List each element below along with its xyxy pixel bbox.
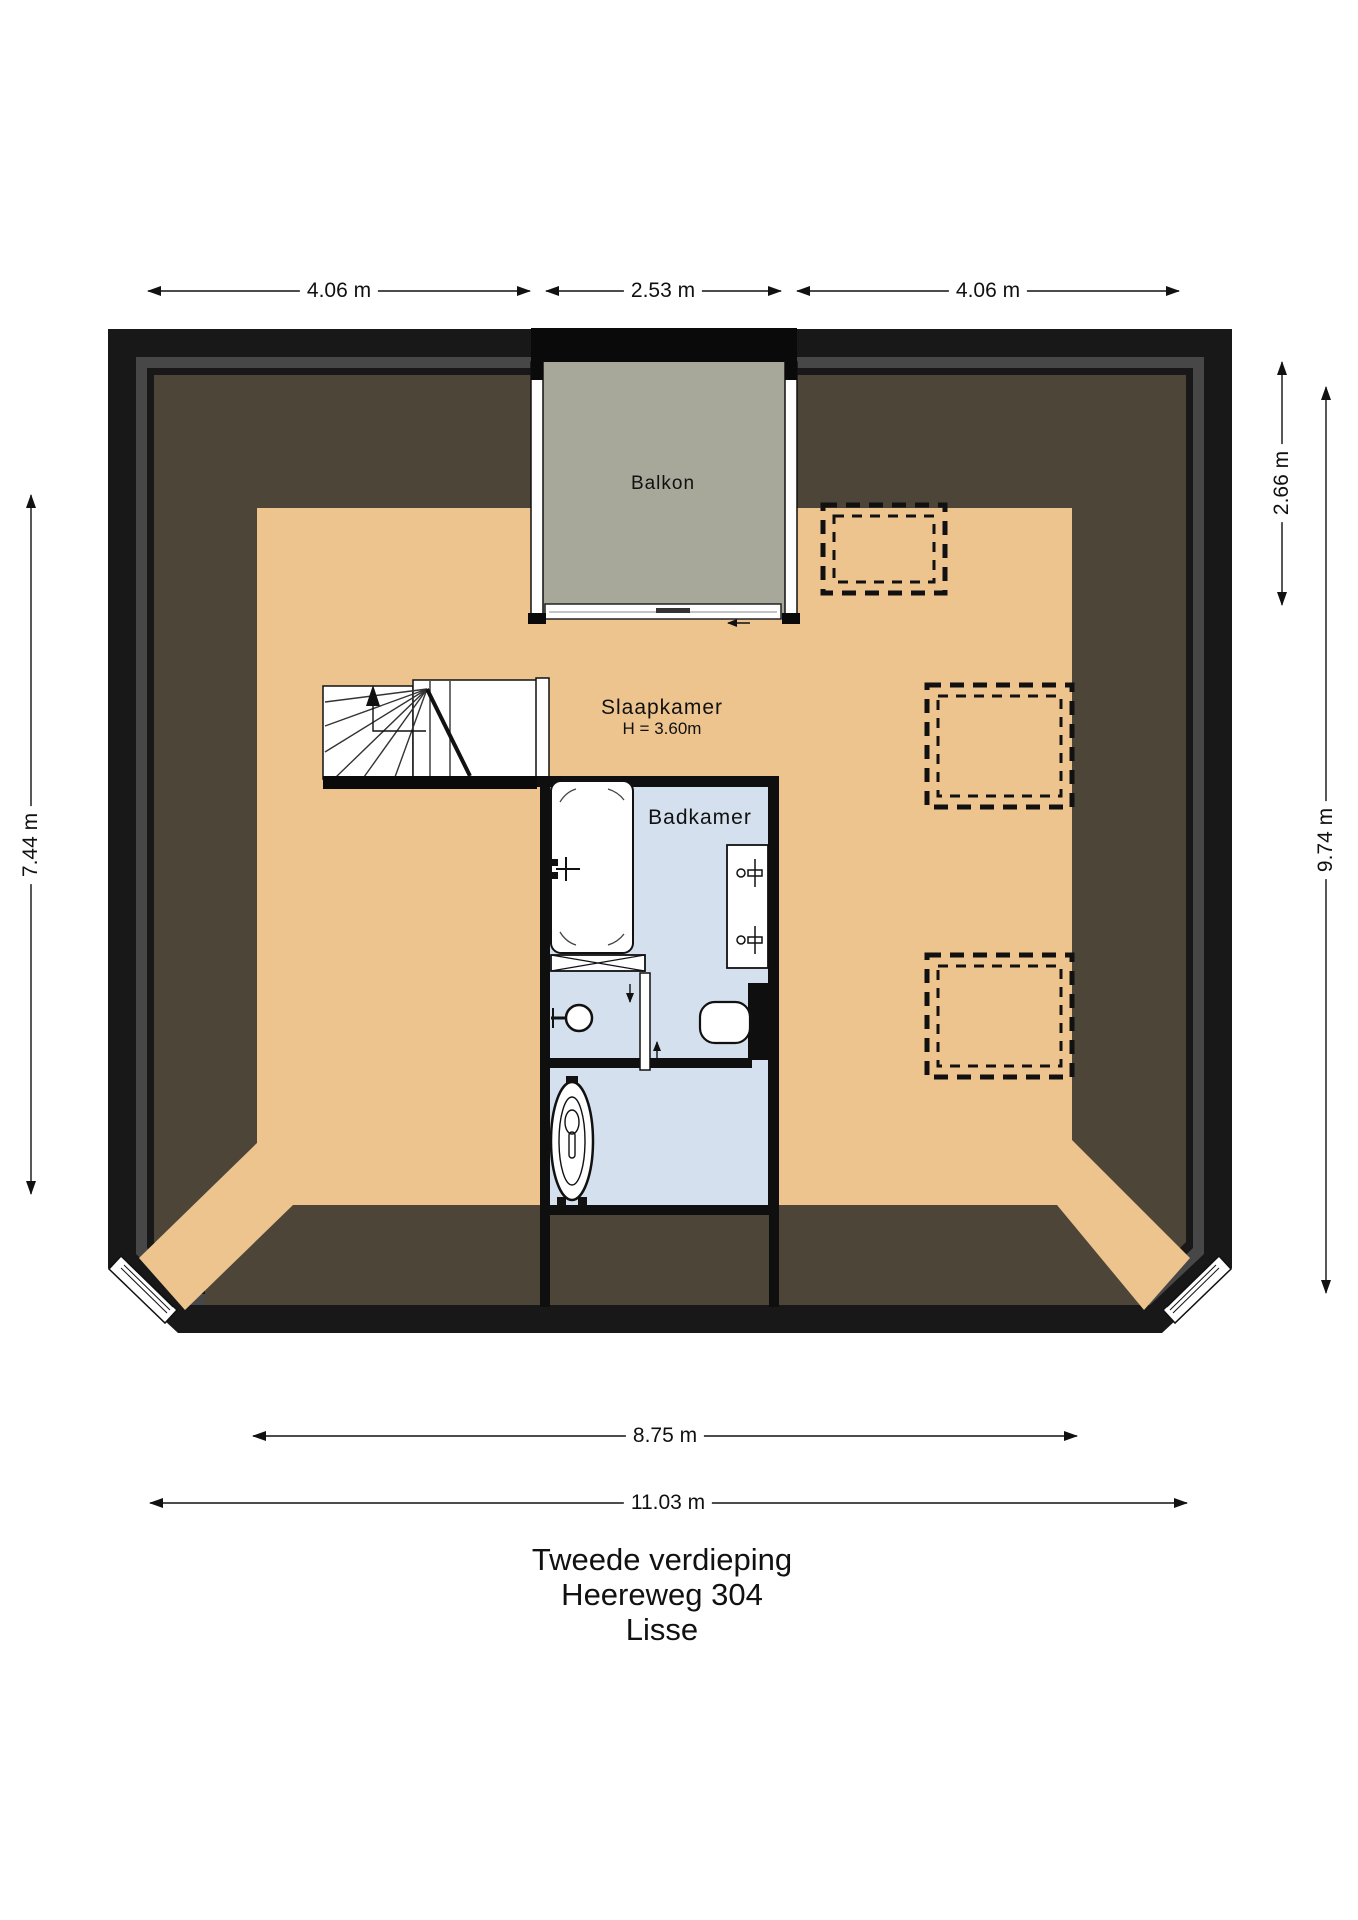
bath-counter (551, 955, 645, 971)
dimension-right-inner-label: 2.66 m (1270, 444, 1294, 522)
dimension-top-right-label: 4.06 m (949, 279, 1027, 303)
bathtub (551, 781, 633, 953)
balcony-label: Balkon (631, 473, 695, 495)
stair-wall-right (536, 678, 549, 779)
dimension-right-outer-label: 9.74 m (1314, 801, 1338, 879)
bathroom-wall-left (540, 776, 550, 1215)
title-address: Heereweg 304 (532, 1577, 792, 1612)
bathroom-wall-left-ext (540, 1215, 550, 1307)
balcony-back-wall (531, 328, 797, 363)
bathroom-door-leaf (640, 973, 650, 1070)
dimension-top-left-label: 4.06 m (300, 279, 378, 303)
stair-base-wall (323, 776, 537, 789)
roof-zone-bottom (205, 1240, 1141, 1305)
sink-counter (727, 845, 768, 968)
title-block: Tweede verdieping Heereweg 304 Lisse (532, 1542, 792, 1647)
title-floor: Tweede verdieping (532, 1542, 792, 1577)
bathroom-wall-bottom (540, 1205, 779, 1215)
bedroom-label: Slaapkamer (601, 696, 723, 720)
balcony-rail-right-cap-top (785, 328, 797, 380)
dimension-bottom-inner-label: 8.75 m (626, 1424, 704, 1448)
floorplan-page: 4.06 m 2.53 m 4.06 m 7.44 m 2.66 m 9.74 … (0, 0, 1358, 1920)
dimension-bottom-outer-label: 11.03 m (624, 1491, 712, 1515)
balcony-rail-left (531, 362, 543, 620)
bedroom-height-label: H = 3.60m (623, 719, 702, 739)
bathroom-label: Badkamer (648, 806, 752, 830)
balcony-cap-right (782, 613, 800, 624)
staircase (323, 678, 549, 789)
dimension-top-middle-label: 2.53 m (624, 279, 702, 303)
balcony-door-leaf (656, 608, 690, 613)
title-city: Lisse (532, 1612, 792, 1647)
dimension-left-label: 7.44 m (19, 806, 43, 884)
balcony-rail-right (785, 362, 797, 620)
bathroom-wall-right-ext (769, 1215, 779, 1307)
balcony-rail-left-cap-top (531, 328, 543, 380)
bidet-fixture (551, 1076, 593, 1206)
balcony-cap-left (528, 613, 546, 624)
